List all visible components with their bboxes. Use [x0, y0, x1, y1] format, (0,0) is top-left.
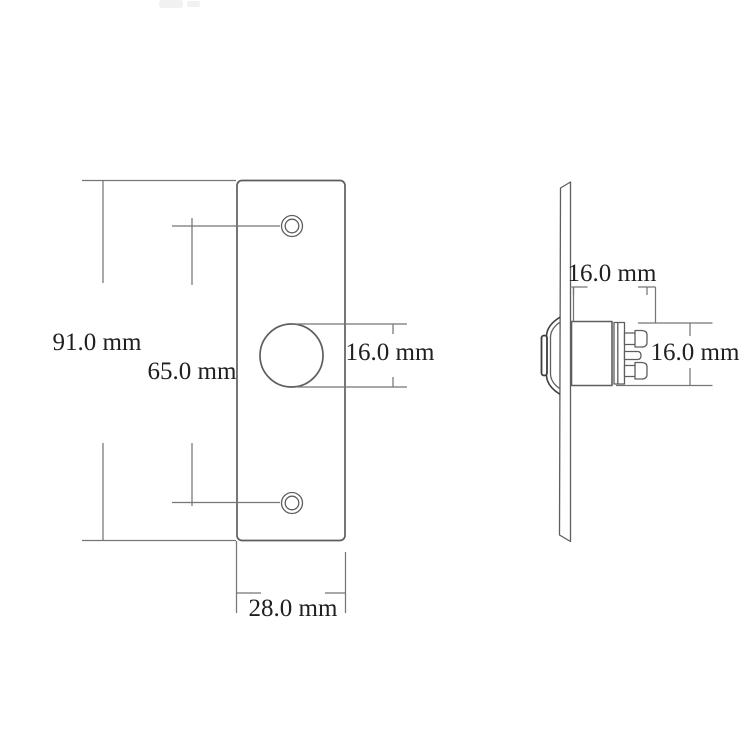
- dim-body-depth-label: 16.0 mm: [568, 260, 657, 287]
- side-view: [542, 182, 648, 542]
- terminal-bottom-cap: [635, 363, 647, 380]
- dim-plate-width-label: 28.0 mm: [249, 595, 338, 622]
- dim-plate-width: 28.0 mm: [237, 541, 346, 622]
- button-cap-tip: [542, 336, 548, 376]
- watermark-smudge: [159, 0, 200, 8]
- push-button-profile: [542, 318, 560, 395]
- terminal-top-stem: [625, 333, 636, 345]
- dim-front-height-label: 91.0 mm: [53, 329, 142, 356]
- switch-body: [572, 322, 613, 386]
- technical-drawing-page: 91.0 mm 65.0 mm 16.0 mm 28.0 mm: [0, 0, 750, 750]
- terminal-bottom-stem: [625, 366, 636, 377]
- faceplate-outline: [237, 181, 345, 541]
- terminal-middle-pin: [625, 352, 642, 360]
- dim-hole-spacing-label: 65.0 mm: [148, 358, 237, 385]
- terminal-pins: [625, 331, 648, 380]
- dim-body-depth: 16.0 mm: [568, 260, 657, 323]
- terminal-top-cap: [635, 331, 647, 348]
- faceplate-edge: [560, 182, 571, 542]
- dimension-drawing-canvas: 91.0 mm 65.0 mm 16.0 mm 28.0 mm: [0, 0, 750, 750]
- front-view: [237, 181, 345, 541]
- dim-hole-diameter-label: 16.0 mm: [346, 339, 435, 366]
- dim-body-height-label: 16.0 mm: [651, 339, 740, 366]
- switch-rear-cap: [614, 323, 625, 385]
